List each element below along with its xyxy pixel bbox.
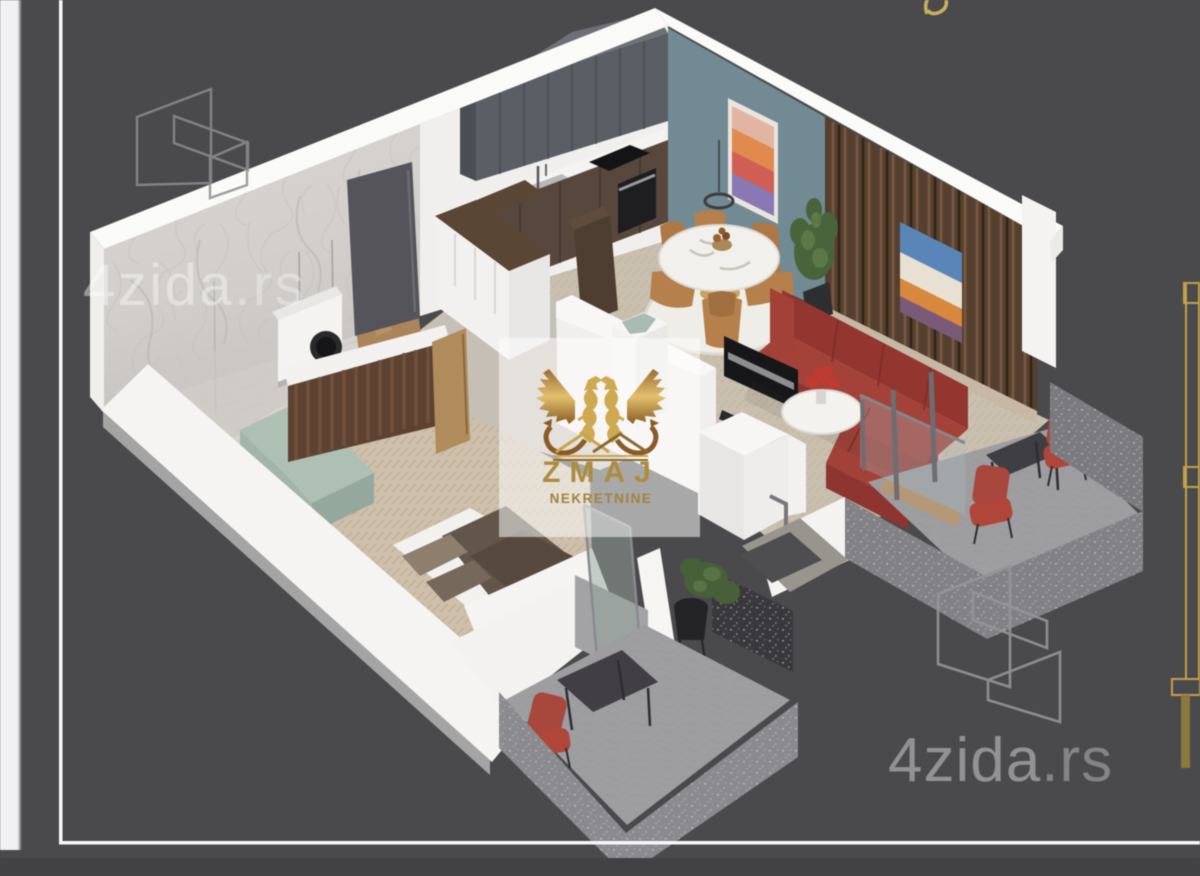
svg-text:NEKRETNINE: NEKRETNINE (550, 491, 653, 506)
svg-text:4zida.rs: 4zida.rs (888, 726, 1113, 795)
svg-text:4zida.rs: 4zida.rs (83, 253, 306, 318)
svg-text:ZMAJ: ZMAJ (542, 456, 660, 489)
